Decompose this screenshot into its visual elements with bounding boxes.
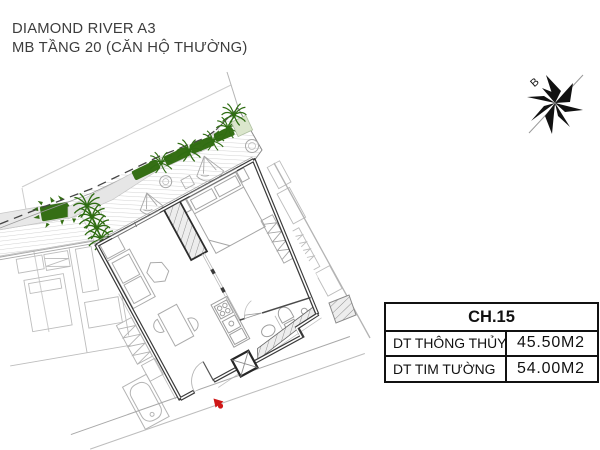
svg-text:B: B — [528, 76, 541, 90]
